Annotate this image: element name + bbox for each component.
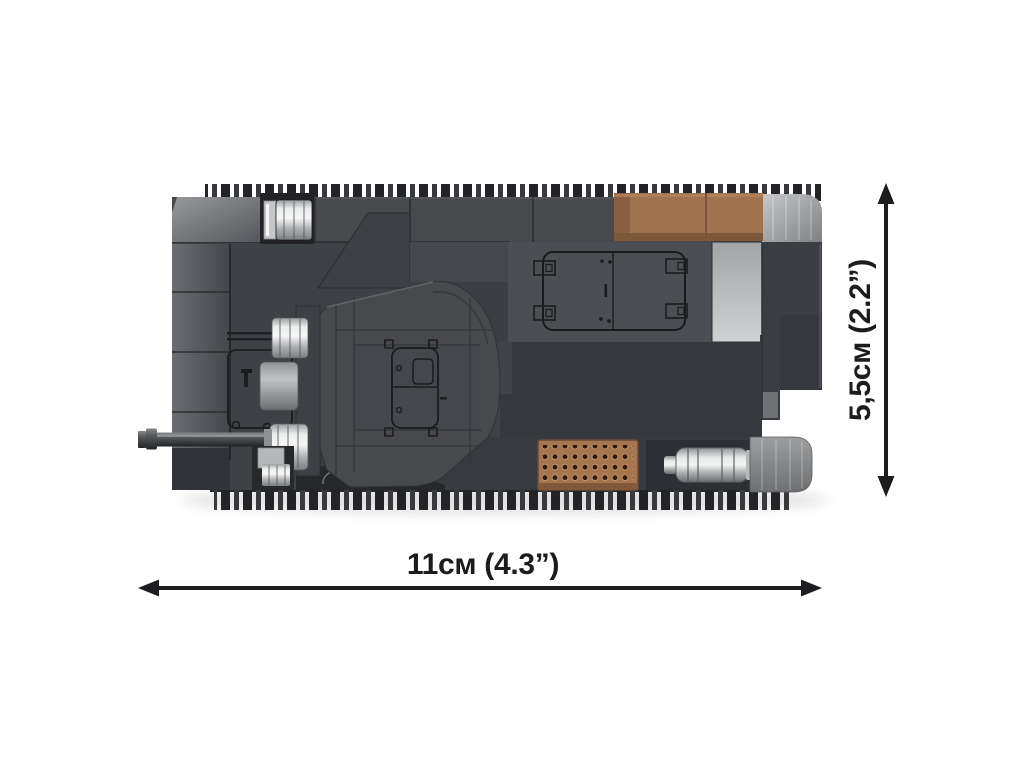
muzzle-ring bbox=[146, 429, 157, 450]
exhaust-muffler bbox=[646, 440, 764, 490]
lamp-bottom-left bbox=[252, 446, 294, 490]
engine-deck-plate bbox=[500, 342, 762, 438]
vent-grille bbox=[538, 440, 638, 490]
gun-cradle-cylinder bbox=[260, 362, 298, 410]
rear-light-plate bbox=[712, 242, 762, 342]
engine-hatch bbox=[508, 242, 712, 342]
headlight-lens bbox=[264, 201, 276, 239]
product-dimension-figure: 11см (4.3”) 5,5см (2.2”) bbox=[0, 0, 1024, 768]
grille-holes bbox=[543, 445, 633, 487]
glacis-corner-brick bbox=[172, 197, 264, 242]
glacis-plates-left bbox=[172, 244, 230, 490]
headlight-top-left bbox=[260, 193, 314, 244]
height-dimension-label: 5,5см (2.2”) bbox=[844, 259, 878, 421]
width-dimension-label: 11см (4.3”) bbox=[407, 548, 559, 582]
superstructure-plate bbox=[410, 242, 508, 288]
track-end-top-right bbox=[763, 194, 822, 242]
stowage-box bbox=[614, 193, 763, 241]
